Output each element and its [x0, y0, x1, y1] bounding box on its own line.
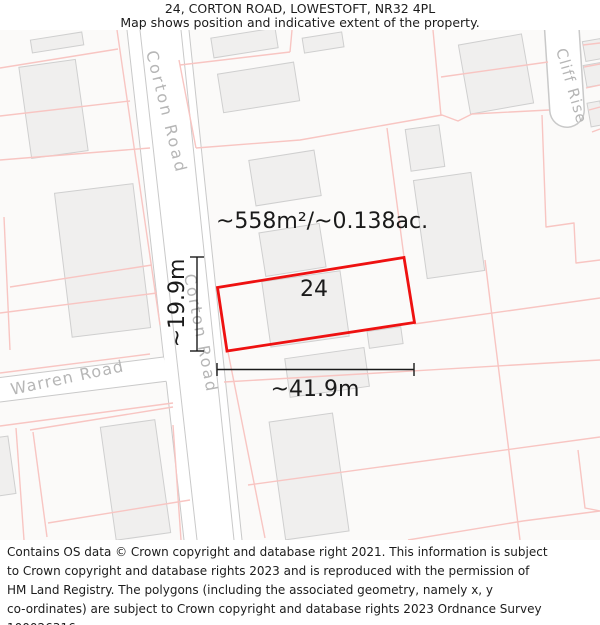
building: [19, 59, 88, 158]
building: [405, 125, 445, 171]
building: [55, 184, 151, 338]
page-title: 24, CORTON ROAD, LOWESTOFT, NR32 4PL: [0, 0, 600, 16]
copyright-notice: Contains OS data © Crown copyright and d…: [0, 540, 600, 625]
footer-line: Contains OS data © Crown copyright and d…: [0, 543, 600, 562]
width-dimension-label: ~41.9m: [271, 377, 360, 402]
map-canvas: Corton Road Corton Road Warren Road Clif…: [0, 30, 600, 540]
property-map-page: 24, CORTON ROAD, LOWESTOFT, NR32 4PL Map…: [0, 0, 600, 625]
footer-line: 100026316.: [0, 619, 600, 625]
footer-line: HM Land Registry. The polygons (includin…: [0, 581, 600, 600]
footer-line: to Crown copyright and database rights 2…: [0, 562, 600, 581]
building: [458, 34, 533, 114]
footer-line: co-ordinates) are subject to Crown copyr…: [0, 600, 600, 619]
building: [582, 39, 600, 62]
building: [249, 150, 321, 206]
height-dimension-label: ~19.9m: [165, 259, 190, 348]
page-subtitle: Map shows position and indicative extent…: [0, 16, 600, 30]
map: Corton Road Corton Road Warren Road Clif…: [0, 30, 600, 540]
plot-number-label: 24: [300, 277, 328, 302]
area-label: ~558m²/~0.138ac.: [216, 209, 428, 234]
header: 24, CORTON ROAD, LOWESTOFT, NR32 4PL Map…: [0, 0, 600, 30]
